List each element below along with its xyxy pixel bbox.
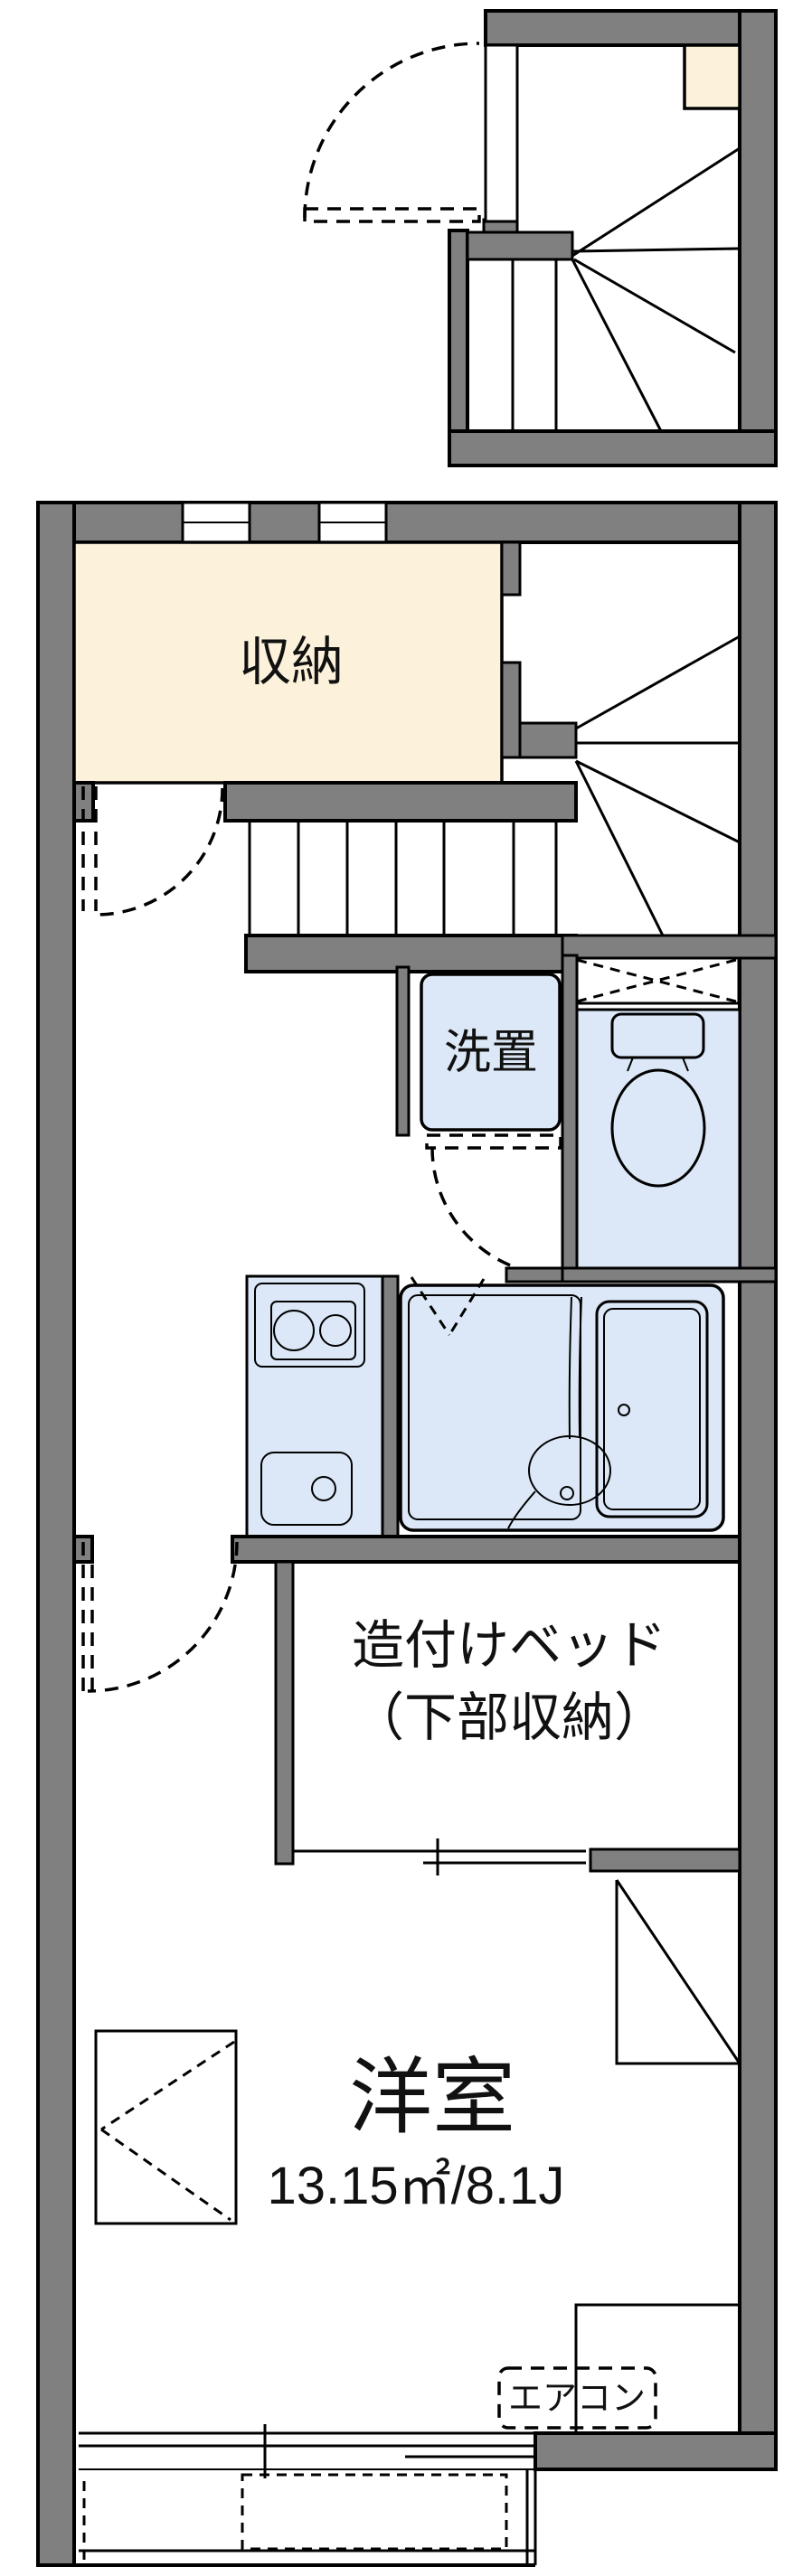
washer-space: 洗置 — [397, 967, 561, 1275]
toilet-icon — [612, 1014, 704, 1186]
stair-newel — [520, 723, 576, 757]
storage-label: 収納 — [239, 633, 344, 691]
bathroom — [401, 1268, 723, 1530]
aircon-label: エアコン — [508, 2380, 646, 2418]
bed-west-wall — [276, 1562, 293, 1864]
room-name-label: 洋室 — [349, 2052, 515, 2144]
balcony-dashed-area — [242, 2475, 506, 2549]
toilet-west-wall — [562, 955, 577, 1268]
wall-top — [486, 11, 776, 45]
western-room: 洋室 13.15㎡/8.1J エアコン — [96, 2031, 740, 2433]
bed-label-line1: 造付けベッド — [352, 1616, 666, 1675]
washer-west-wall — [397, 967, 409, 1135]
floor-plan: 収納 洗置 — [0, 0, 812, 2576]
washroom-door-panel — [427, 1135, 561, 1148]
side-window-icon — [96, 2031, 236, 2223]
stair-newel-wall — [467, 232, 572, 259]
storage-door-arc-icon — [96, 788, 222, 915]
built-in-bed-area: 造付けベッド （下部収納） — [74, 1537, 740, 2064]
corridor-door-swing — [83, 1542, 237, 1691]
bath-north-wall — [506, 1268, 562, 1282]
door-frame — [486, 45, 517, 221]
toilet-south-wall — [562, 1268, 776, 1282]
bed-label-line2: （下部収納） — [352, 1688, 666, 1747]
washroom-door-arc-icon — [432, 1148, 560, 1275]
corner-shelf-icon — [617, 1880, 740, 2064]
wall-right — [740, 11, 776, 465]
upper-winder-stairs — [513, 148, 740, 431]
room-size-label: 13.15㎡/8.1J — [268, 2157, 565, 2215]
wall-bottom — [449, 431, 776, 465]
entrance-door-swing — [305, 43, 479, 221]
balcony — [38, 2446, 535, 2565]
stair-south-wall — [246, 935, 576, 972]
wall-west — [38, 503, 74, 2565]
storage-south-wall — [225, 783, 576, 821]
wall-east — [740, 503, 776, 2469]
entrance-stair-block — [305, 11, 776, 465]
storage-east-wall-lower — [502, 663, 520, 757]
corridor-door-arc-icon — [88, 1542, 237, 1691]
kitchen-counter — [247, 1276, 382, 1537]
north-window-left — [183, 503, 250, 542]
south-sliding-window-icon — [79, 2424, 535, 2478]
bed-south-wall — [590, 1849, 740, 1871]
wall-north — [38, 503, 776, 542]
stair-winders-upper — [576, 636, 740, 743]
kitchen-bath-wall — [382, 1276, 398, 1537]
kitchen — [247, 1276, 398, 1537]
storage-room: 収納 — [74, 542, 576, 915]
storage-door-swing — [83, 786, 222, 915]
wall-left — [449, 230, 467, 431]
corridor-door-panel — [83, 1542, 92, 1691]
washer-label: 洗置 — [444, 1027, 538, 1079]
entrance-door-arc-icon — [305, 43, 479, 218]
stair-winders-lower — [576, 761, 740, 935]
north-window-right — [319, 503, 386, 542]
bed-north-wall — [232, 1537, 740, 1562]
shoe-cabinet — [685, 45, 740, 108]
toilet-north-wall — [562, 935, 776, 958]
bed-sliding-door-icon — [293, 1838, 586, 1876]
bath-module — [401, 1285, 723, 1530]
stair-treads — [250, 821, 556, 935]
storage-east-wall-upper — [502, 542, 520, 595]
wall-south-east — [535, 2433, 776, 2469]
washroom-door-swing — [427, 1135, 561, 1275]
entrance-door-panel — [305, 209, 479, 221]
